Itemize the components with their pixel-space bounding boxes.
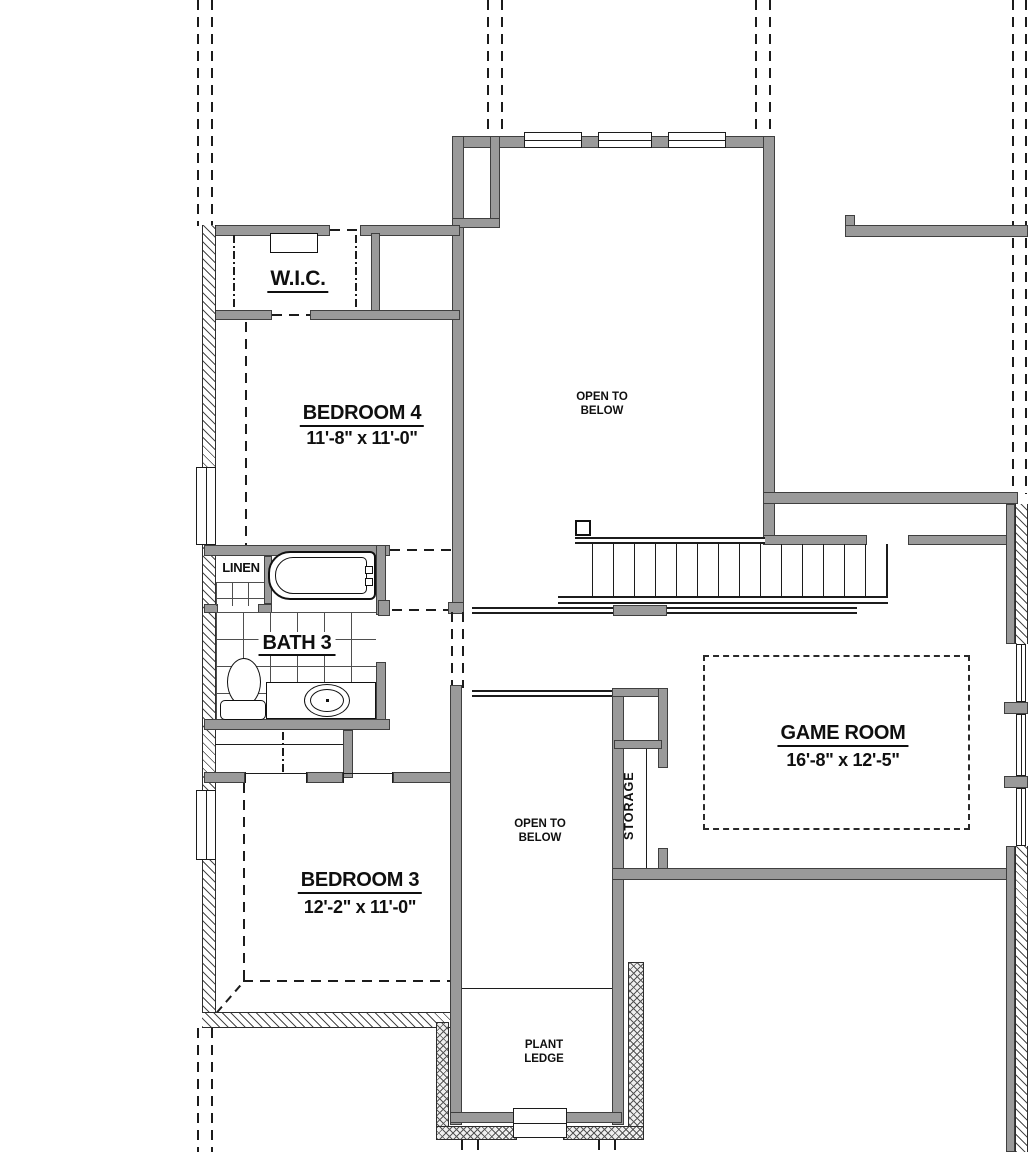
room-label-plant-ledge: PLANT LEDGE [524,1038,564,1066]
label-line: BELOW [576,404,628,418]
ceiling-break-dashed [216,980,246,1014]
exterior-wall-hatch [202,1012,450,1028]
room-label-linen: LINEN [222,560,260,575]
stair-treads [592,544,888,596]
wall-segment [614,740,662,749]
plant-ledge-wall-crosshatch [436,1126,517,1140]
room-label-bath3: BATH 3 [259,632,336,655]
room-name: BATH 3 [259,632,336,656]
opening-jamb-tick [306,772,307,783]
ceiling-break-dashed [245,322,247,545]
ceiling-break-dashed [243,980,450,982]
floor-opening-edge [667,607,857,614]
cabinet-line [215,744,343,745]
room-name: BEDROOM 4 [300,402,424,427]
room-name: W.I.C. [267,267,328,293]
window [598,132,652,148]
room-dims-bedroom3: 12'-2" x 11'-0" [304,897,416,918]
wall-segment [452,136,464,614]
room-label-open-to-below-upper: OPEN TO BELOW [576,390,628,418]
opening-header-line [343,773,393,774]
room-name: LINEN [222,560,260,575]
tile-floor [216,582,264,606]
room-label-wic: W.I.C. [267,267,328,291]
dashed-line [614,1140,616,1152]
room-dims-game-room: 16'-8" x 12'-5" [786,750,899,771]
wall-segment [204,772,245,783]
closet-shelf [270,233,318,253]
wall-segment [658,688,668,768]
room-dims: 12'-2" x 11'-0" [304,897,416,917]
room-label-open-to-below-lower: OPEN TO BELOW [514,817,566,845]
exterior-wall-hatch [1015,504,1028,644]
label-line: OPEN TO [514,817,566,831]
label-line: PLANT [524,1038,564,1052]
room-label-bedroom3: BEDROOM 3 [298,869,422,892]
toilet-bowl [227,658,261,706]
window [668,132,726,148]
newel-post [575,520,591,536]
door-opening-dashed [272,314,310,316]
wall-segment [613,605,667,616]
dashed-line [487,0,489,134]
dashed-line [769,0,771,134]
plant-ledge-wall-crosshatch [436,1022,449,1140]
stair-railing [575,537,765,544]
dashed-line [461,1140,463,1152]
dashed-line [211,0,213,226]
wall-segment [307,772,343,783]
window [513,1108,567,1138]
shelf-line [646,749,647,868]
dashed-line [211,1028,213,1152]
room-label-storage: STORAGE [622,774,636,840]
wall-segment [378,600,390,616]
wall-segment [450,685,462,1125]
wall-segment [845,225,1028,237]
window-mullion [1004,776,1028,788]
room-name: GAME ROOM [777,722,908,747]
closet-rod-line [282,732,284,772]
opening-jamb-tick [392,772,393,783]
closet-rod-line [233,235,235,308]
dashed-line [197,1028,199,1152]
dashed-line [501,0,503,134]
bathtub-inner [275,557,367,594]
label-line: LEDGE [524,1052,564,1066]
room-name: STORAGE [622,771,636,840]
window [196,790,216,860]
wall-segment [371,233,380,316]
wall-above-dashed [462,612,464,688]
label-line: OPEN TO [576,390,628,404]
wall-segment [1006,504,1015,644]
wall-segment [1006,846,1015,1152]
opening-header-line [245,773,307,774]
dashed-line [598,1140,600,1152]
floor-opening-edge [472,690,612,697]
opening-jamb-tick [343,772,344,783]
stair-railing [558,596,888,604]
wall-segment [490,136,500,226]
room-dims-bedroom4: 11'-8" x 11'-0" [306,428,417,449]
faucet-icon [365,578,373,586]
room-dims: 16'-8" x 12'-5" [786,750,899,770]
wall-segment [908,535,1012,545]
label-line: BELOW [514,831,566,845]
exterior-wall-hatch [1015,846,1028,1152]
dashed-line [477,1140,479,1152]
wall-segment [563,1112,622,1123]
sink-drain [326,699,329,702]
window [1016,644,1026,702]
door-opening-dashed [330,229,360,231]
ceiling-break-dashed [243,783,245,980]
opening-dashed [390,549,452,551]
wall-segment [310,310,460,320]
toilet-tank [220,700,266,720]
plant-ledge-wall-crosshatch [563,1126,644,1140]
dashed-line [197,0,199,226]
wall-segment [612,868,1014,880]
window-mullion [1004,702,1028,714]
wall-segment [612,688,624,1125]
room-label-game-room: GAME ROOM [777,722,908,745]
exterior-wall-hatch [202,225,216,1015]
wall-segment [204,719,390,730]
opening-dashed [392,609,448,611]
wall-segment [376,662,386,724]
dashed-line [755,0,757,134]
opening-jamb-tick [245,772,246,783]
wall-segment [763,136,775,545]
window [196,467,216,545]
dashed-line [1025,0,1027,494]
room-name: BEDROOM 3 [298,869,422,894]
wall-above-dashed [451,612,453,688]
room-dims: 11'-8" x 11'-0" [306,428,417,448]
floor-plan: OPEN TO BELOW W.I.C. BEDROOM 4 11'-8" x … [0,0,1028,1152]
floor-opening-edge [472,607,613,614]
dashed-line [1012,0,1014,494]
wall-segment [450,1112,517,1123]
window [524,132,582,148]
room-label-bedroom4: BEDROOM 4 [300,402,424,425]
window [1016,788,1026,846]
plant-ledge-wall-crosshatch [628,962,644,1140]
plant-ledge-edge-line [462,988,612,989]
wall-segment [763,492,1018,504]
faucet-icon [365,566,373,574]
closet-rod-line [355,235,357,308]
window [1016,714,1026,776]
wall-segment [343,730,353,778]
